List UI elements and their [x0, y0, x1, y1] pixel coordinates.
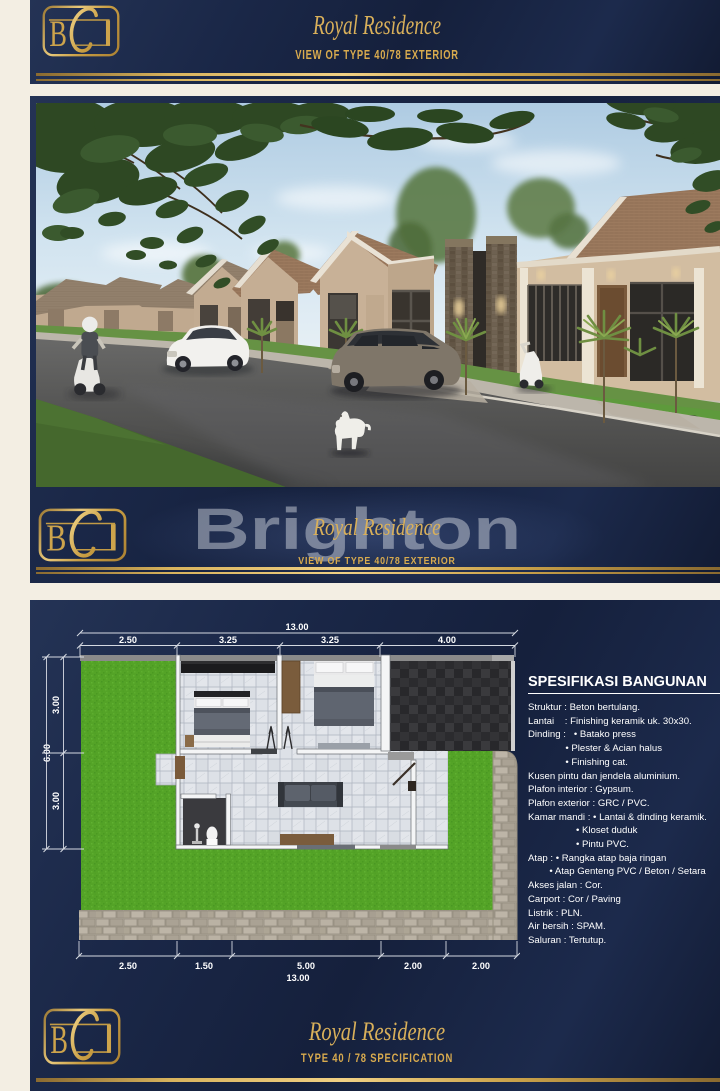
svg-text:1.50: 1.50 [195, 961, 213, 971]
svg-text:3.00: 3.00 [51, 696, 61, 714]
svg-text:3.00: 3.00 [51, 792, 61, 810]
svg-text:2.00: 2.00 [472, 961, 490, 971]
svg-text:13.00: 13.00 [286, 622, 309, 632]
svg-text:2.50: 2.50 [119, 635, 137, 645]
svg-text:13.00: 13.00 [287, 973, 310, 983]
svg-text:3.25: 3.25 [321, 635, 339, 645]
svg-text:2.50: 2.50 [119, 961, 137, 971]
svg-text:2.00: 2.00 [404, 961, 422, 971]
svg-text:4.00: 4.00 [438, 635, 456, 645]
svg-text:3.25: 3.25 [219, 635, 237, 645]
svg-text:5.00: 5.00 [297, 961, 315, 971]
